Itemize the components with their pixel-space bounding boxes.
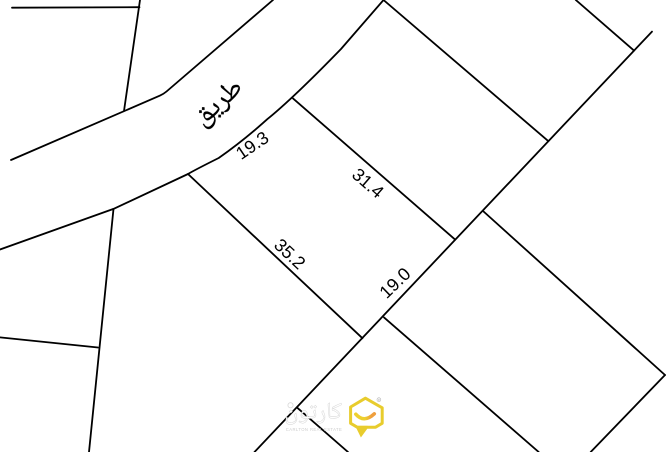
svg-text:CARLTON REAL ESTATE: CARLTON REAL ESTATE (286, 427, 342, 432)
svg-text:R: R (378, 398, 380, 402)
